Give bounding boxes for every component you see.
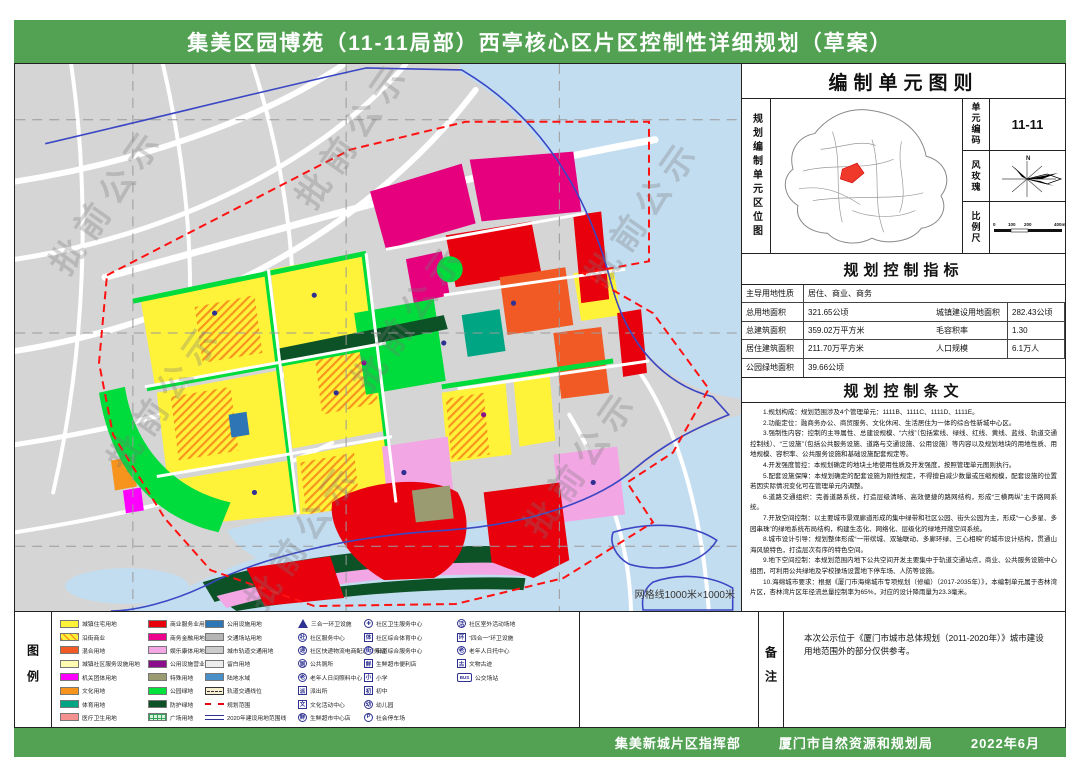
legend-item: 城市轨道交通用地 (205, 644, 286, 657)
indicator-value: 211.70万平方米 (804, 340, 932, 358)
legend-label: 社区服务中心 (310, 633, 345, 642)
legend-item: 文化用地 (60, 684, 140, 697)
footer-org1: 集美新城片区指挥部 (615, 733, 741, 752)
legend-label: 城镇社区服务设施用地 (82, 659, 140, 668)
legend-label: 广场用地 (170, 713, 193, 722)
legend-label: 特殊用地 (170, 673, 193, 682)
indicator-label: 人口规模 (932, 340, 1008, 358)
legend-label: 初中 (376, 686, 388, 695)
legend-swatch-color (60, 660, 79, 668)
legend-label: 机关团体用地 (82, 673, 117, 682)
legend-item: BUS公交场站 (457, 671, 515, 684)
legend-swatch-color (60, 673, 79, 681)
legend-column: 活社区室外活动场地环“四合一”环卫设施老老年人日托中心古文物古迹BUS公交场站 (457, 617, 515, 725)
svg-text:400m: 400m (1054, 222, 1066, 227)
legend-spacer (580, 612, 759, 727)
indicator-value: 居住、商业、商务 (804, 285, 1065, 303)
legend-label: 轨道交通线位 (227, 686, 262, 695)
indicator-label: 总建筑面积 (742, 322, 804, 340)
legend-label: 生鲜超市中心店 (310, 713, 351, 722)
legend-column: ✚社区卫生服务中心体社区综合体育中心街街道综合服务中心鲜生鲜超市便利店小小学初初… (364, 617, 422, 725)
legend-swatch-grid (148, 713, 167, 721)
legend-label: 混合用地 (82, 646, 105, 655)
legend-swatch-color (205, 620, 224, 628)
indicator-value: 6.1万人 (1008, 340, 1065, 358)
legend-swatch-color (205, 646, 224, 654)
legend-item: 环“四合一”环卫设施 (457, 630, 515, 643)
svg-text:0: 0 (993, 222, 996, 227)
indicator-label: 公园绿地面积 (742, 359, 804, 377)
unit-code-label: 单元编码 (963, 99, 990, 150)
legend-label: 商务金融用地 (170, 633, 205, 642)
scale-bar-label: 比例尺 (963, 202, 990, 253)
legend-swatch-color (60, 620, 79, 628)
legend-label: 医疗卫生用地 (82, 713, 117, 722)
legend-label: 交通场站用地 (227, 633, 262, 642)
legend-item: 城镇社区服务设施用地 (60, 657, 140, 670)
facility-icon: 递 (298, 646, 307, 655)
location-meta-column: 单元编码 11-11 风玫瑰 N (963, 99, 1065, 253)
facility-icon: 环 (457, 633, 466, 642)
legend-item: 小小学 (364, 671, 422, 684)
indicator-label: 城镇建设用地面积 (932, 303, 1008, 321)
facility-icon: P (364, 713, 373, 722)
district-location-map (771, 99, 963, 253)
legend-swatch-color (60, 646, 79, 654)
provision-item: 4.开发强度管控：本规划确定的地块土地使用性质及开发强度，按照管理单元图则执行。 (750, 461, 1057, 472)
indicator-value: 39.66公顷 (804, 359, 1065, 377)
unit-plan-panel: 编制单元图则 规划编制单元区位图 (742, 64, 1065, 611)
provisions-text: 1.规划构成：规划范围涉及4个管理单元：1111B、1111C、1111D、11… (742, 403, 1065, 611)
legend-swatch-color (148, 687, 167, 695)
legend-column: 城镇住宅用地沿街商业混合用地城镇社区服务设施用地机关团体用地文化用地体育用地医疗… (60, 617, 140, 725)
legend-swatch-color (205, 633, 224, 641)
legend-label: 文物古迹 (469, 659, 492, 668)
legend-label: 城镇住宅用地 (82, 619, 117, 628)
legend-swatch-color (148, 620, 167, 628)
panel-title: 编制单元图则 (742, 64, 1065, 99)
facility-icon: 体 (364, 633, 373, 642)
legend-swatch-dash-red (205, 703, 224, 705)
facility-icon: 社 (298, 633, 307, 642)
legend-label: 街道综合服务中心 (376, 646, 422, 655)
legend-label: 陆地水域 (227, 673, 250, 682)
zoning-map-panel: 批前公示 批前公示 批前公示 批前公示 批前公示 批前公示 批前公示 网格线10… (15, 64, 742, 611)
footer-bar: 集美新城片区指挥部 厦门市自然资源和规划局 2022年6月 (14, 728, 1066, 757)
legend-label: 社区卫生服务中心 (376, 619, 422, 628)
legend-item: 沿街商业 (60, 630, 140, 643)
legend-item: 城镇住宅用地 (60, 617, 140, 630)
facility-icon: 派 (298, 686, 307, 695)
facility-icon: 鲜 (298, 713, 307, 722)
provision-item: 10.海绵城市要求：根据《厦门市海绵城市专项规划（修编）（2017-2035年）… (750, 578, 1057, 599)
legend-item: 幼幼儿园 (364, 697, 422, 710)
facility-icon: 古 (457, 659, 466, 668)
facility-icon: 初 (364, 686, 373, 695)
facility-icon: 幼 (364, 700, 373, 709)
indicator-label: 毛容积率 (932, 322, 1008, 340)
svg-text:100: 100 (1008, 222, 1016, 227)
legend-label: “四合一”环卫设施 (469, 633, 513, 642)
facility-icon: ✚ (364, 619, 373, 628)
provision-item: 5.配套设施保障：本规划确定的配套设施为刚性规定，不得擅自减少数量或压缩规模，配… (750, 472, 1057, 493)
indicator-label: 主导用地性质 (742, 285, 804, 303)
facility-icon: 厕 (298, 659, 307, 668)
legend-item: 医疗卫生用地 (60, 711, 140, 724)
legend-label: 文化用地 (82, 686, 105, 695)
legend-label: 防护绿地 (170, 700, 193, 709)
legend-item: 规划范围 (205, 697, 286, 710)
legend-item: 陆地水域 (205, 671, 286, 684)
legend-item: 混合用地 (60, 644, 140, 657)
legend-label: 城市轨道交通用地 (227, 646, 273, 655)
location-side-label: 规划编制单元区位图 (742, 99, 771, 253)
legend-label: 文化活动中心 (310, 700, 345, 709)
indicator-label: 总用地面积 (742, 303, 804, 321)
provision-item: 1.规划构成：规划范围涉及4个管理单元：1111B、1111C、1111D、11… (750, 408, 1057, 419)
legend: 城镇住宅用地沿街商业混合用地城镇社区服务设施用地机关团体用地文化用地体育用地医疗… (52, 612, 580, 727)
footer-date: 2022年6月 (971, 733, 1040, 752)
wind-rose-label: 风玫瑰 (963, 151, 990, 202)
legend-item: 街街道综合服务中心 (364, 644, 422, 657)
legend-label: 社区室外活动场地 (469, 619, 515, 628)
facility-icon: 鲜 (364, 659, 373, 668)
provision-item: 7.开放空间控制：以主要城市景观廊道形成的集中绿带和社区公园、街头公园为主，形成… (750, 514, 1057, 535)
legend-side-label: 图例 (15, 612, 52, 727)
legend-label: 沿街商业 (82, 633, 105, 642)
legend-swatch-track (205, 687, 224, 695)
footer-org2: 厦门市自然资源和规划局 (779, 733, 933, 752)
legend-label: 公交场站 (475, 673, 498, 682)
legend-label: 公共厕所 (310, 659, 333, 668)
provision-item: 3.强制性内容：控制的主导属性、总建设规模、“六线”（包括紫线、绿线、红线、黄线… (750, 429, 1057, 461)
legend-item: 老老年人日托中心 (457, 644, 515, 657)
legend-item: 鲜生鲜超市便利店 (364, 657, 422, 670)
provision-item: 2.功能定位：融商务办公、商贸服务、文化休闲、生活居住为一体的综合性新城中心区。 (750, 419, 1057, 430)
indicator-value: 282.43公顷 (1008, 303, 1065, 321)
bottom-band: 图例 城镇住宅用地沿街商业混合用地城镇社区服务设施用地机关团体用地文化用地体育用… (14, 612, 1066, 728)
indicator-value: 359.02万平方米 (804, 322, 932, 340)
legend-swatch-color (148, 633, 167, 641)
unit-location-row: 规划编制单元区位图 (742, 99, 1065, 254)
provision-item: 6.道路交通组织：完善道路系统，打造层级清晰、高效便捷的路网结构，形成“三横两纵… (750, 493, 1057, 514)
notes-text: 本次公示位于《厦门市城市总体规划（2011-2020年）》城市建设用地范围外的部… (804, 632, 1049, 658)
legend-item: P社会停车场 (364, 711, 422, 724)
scale-bar: 0100200400m (990, 217, 1070, 239)
legend-label: 老年人日托中心 (469, 646, 510, 655)
unit-code-cell: 单元编码 11-11 (963, 99, 1065, 151)
legend-swatch-color (148, 646, 167, 654)
legend-swatch-color (205, 660, 224, 668)
provisions-title: 规划控制条文 (742, 378, 1065, 403)
plan-sheet: 集美区园博苑（11-11局部）西亭核心区片区控制性详细规划（草案） (0, 0, 1080, 763)
legend-label: 留白用地 (227, 659, 250, 668)
legend-label: 生鲜超市便利店 (376, 659, 417, 668)
indicators-title: 规划控制指标 (742, 254, 1065, 285)
title-bar: 集美区园博苑（11-11局部）西亭核心区片区控制性详细规划（草案） (14, 20, 1066, 63)
legend-swatch-color (148, 700, 167, 708)
legend-item: ✚社区卫生服务中心 (364, 617, 422, 630)
legend-swatch-color (148, 660, 167, 668)
provision-item: 9.地下空间控制：本规划范围内地下公共空间开发主要集中于轨道交通站点，商业、公共… (750, 556, 1057, 577)
provision-item: 8.城市设计引导：规划整体形成“一带缤城、双轴联动、多廊环绿、三心相映”的城市设… (750, 535, 1057, 556)
indicator-value: 1.30 (1008, 322, 1065, 340)
notes-area: 本次公示位于《厦门市城市总体规划（2011-2020年）》城市建设用地范围外的部… (784, 612, 1065, 727)
legend-label: 派出所 (310, 686, 327, 695)
facility-icon: 小 (364, 673, 373, 682)
legend-swatch-color (205, 673, 224, 681)
district-outline-map (772, 102, 962, 250)
svg-text:200: 200 (1024, 222, 1032, 227)
legend-item: 2020年建设用地范围线 (205, 711, 286, 724)
legend-label: 公用设施用地 (227, 619, 262, 628)
indicator-label: 居住建筑面积 (742, 340, 804, 358)
legend-label: 规划范围 (227, 700, 250, 709)
legend-item: 轨道交通线位 (205, 684, 286, 697)
legend-swatch-color (60, 687, 79, 695)
legend-item: 机关团体用地 (60, 671, 140, 684)
legend-item: 留白用地 (205, 657, 286, 670)
legend-item: 体育用地 (60, 697, 140, 710)
facility-icon: 老 (298, 673, 307, 682)
wind-rose-icon: N (992, 153, 1064, 199)
legend-swatch-hatch (60, 633, 79, 641)
notes-side-label: 备注 (759, 612, 784, 727)
scale-bar-cell: 比例尺 0100200400m (963, 202, 1065, 253)
legend-label: 体育用地 (82, 700, 105, 709)
facility-icon: 老 (457, 646, 466, 655)
legend-label: 老年人日间照料中心 (310, 673, 362, 682)
legend-swatch-color (60, 713, 79, 721)
legend-item: 初初中 (364, 684, 422, 697)
facility-icon: 活 (457, 619, 466, 628)
page-title: 集美区园博苑（11-11局部）西亭核心区片区控制性详细规划（草案） (187, 27, 892, 57)
legend-label: 社区综合体育中心 (376, 633, 422, 642)
indicators-table: 主导用地性质居住、商业、商务总用地面积321.65公顷城镇建设用地面积282.4… (742, 285, 1065, 378)
legend-item: 公用设施用地 (205, 617, 286, 630)
legend-column: 公用设施用地交通场站用地城市轨道交通用地留白用地陆地水域轨道交通线位规划范围20… (205, 617, 286, 725)
map-grid-label: 网格线1000米×1000米 (635, 586, 735, 601)
content-frame: 批前公示 批前公示 批前公示 批前公示 批前公示 批前公示 批前公示 网格线10… (14, 63, 1066, 612)
facility-icon: 文 (298, 700, 307, 709)
legend-swatch-color (148, 673, 167, 681)
legend-label: 小学 (376, 673, 388, 682)
legend-item: 体社区综合体育中心 (364, 630, 422, 643)
legend-label: 社会停车场 (376, 713, 405, 722)
legend-label: 幼儿园 (376, 700, 393, 709)
legend-label: 2020年建设用地范围线 (227, 713, 286, 722)
facility-icon: BUS (457, 673, 472, 682)
unit-code-value: 11-11 (990, 99, 1065, 150)
legend-swatch-color (60, 700, 79, 708)
legend-item: 古文物古迹 (457, 657, 515, 670)
legend-item: 活社区室外活动场地 (457, 617, 515, 630)
legend-label: 公园绿地 (170, 686, 193, 695)
indicator-value: 321.65公顷 (804, 303, 932, 321)
facility-icon: 街 (364, 646, 373, 655)
legend-swatch-double-blue (205, 715, 224, 720)
zoning-map (15, 64, 741, 611)
scale-ticks: 0100200400m (993, 222, 1066, 227)
triangle-icon (298, 619, 308, 628)
wind-rose-cell: 风玫瑰 N (963, 151, 1065, 203)
legend-label: 三合一环卫设施 (311, 619, 352, 628)
legend-item: 交通场站用地 (205, 630, 286, 643)
legend-label: 娱乐康体用地 (170, 646, 205, 655)
